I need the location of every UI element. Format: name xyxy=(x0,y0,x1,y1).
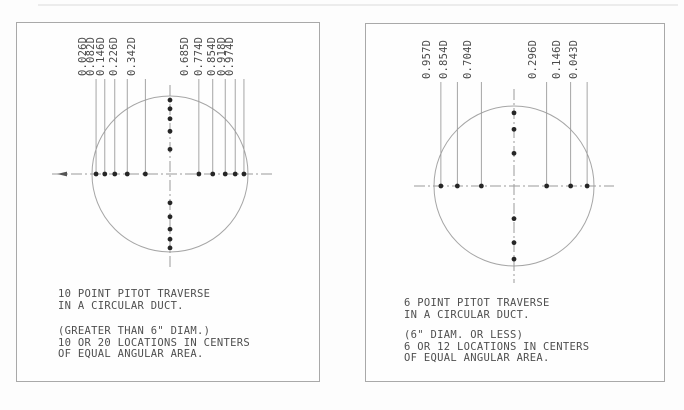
note-line: (6" DIAM. OR LESS) xyxy=(404,330,523,342)
traverse-point-vertical xyxy=(168,237,173,242)
traverse-point-horizontal xyxy=(544,184,549,189)
traverse-point-vertical xyxy=(168,227,173,232)
note-line: OF EQUAL ANGULAR AREA. xyxy=(58,349,204,361)
traverse-point-vertical xyxy=(512,127,517,132)
dimension-label: 0.974D xyxy=(224,37,237,76)
panel-6-point-traverse: 0.957D0.854D0.704D0.296D0.146D0.043D6 PO… xyxy=(365,23,665,382)
traverse-point-horizontal xyxy=(196,172,201,177)
traverse-point-horizontal xyxy=(210,172,215,177)
traverse-point-horizontal xyxy=(455,184,460,189)
dimension-label: 0.854D xyxy=(438,40,451,79)
caption-line: 6 POINT PITOT TRAVERSE xyxy=(404,298,550,310)
dimension-label: 0.226D xyxy=(108,37,121,76)
traverse-point-horizontal xyxy=(242,172,247,177)
caption-line: IN A CIRCULAR DUCT. xyxy=(58,301,184,313)
dimension-label: 0.704D xyxy=(462,40,475,79)
traverse-point-horizontal xyxy=(568,184,573,189)
traverse-point-vertical xyxy=(512,216,517,221)
traverse-point-horizontal xyxy=(125,172,130,177)
note-line: OF EQUAL ANGULAR AREA. xyxy=(404,353,550,365)
centerline-arrowhead xyxy=(57,172,67,177)
caption-line: 10 POINT PITOT TRAVERSE xyxy=(58,289,210,301)
dimension-label: 0.342D xyxy=(126,37,139,76)
caption-line: IN A CIRCULAR DUCT. xyxy=(404,310,530,322)
dimension-label: 0.957D xyxy=(421,40,434,79)
traverse-point-vertical xyxy=(512,257,517,262)
traverse-point-horizontal xyxy=(94,172,99,177)
panel-10-point-traverse: 0.026D0.082D0.146D0.226D0.342D0.685D0.77… xyxy=(16,22,320,382)
dimension-label: 0.146D xyxy=(551,40,564,79)
traverse-point-vertical xyxy=(512,240,517,245)
traverse-point-vertical xyxy=(512,110,517,115)
traverse-point-vertical xyxy=(168,116,173,121)
traverse-point-vertical xyxy=(168,106,173,111)
dimension-label: 0.774D xyxy=(193,37,206,76)
traverse-point-horizontal xyxy=(479,184,484,189)
traverse-point-vertical xyxy=(168,246,173,251)
traverse-point-horizontal xyxy=(223,172,228,177)
traverse-point-vertical xyxy=(168,200,173,205)
traverse-point-horizontal xyxy=(143,172,148,177)
traverse-point-horizontal xyxy=(438,184,443,189)
traverse-point-vertical xyxy=(168,98,173,103)
traverse-point-horizontal xyxy=(233,172,238,177)
note-line: (GREATER THAN 6" DIAM.) xyxy=(58,326,210,338)
traverse-diagram xyxy=(366,24,664,381)
dimension-label: 0.296D xyxy=(527,40,540,79)
traverse-point-vertical xyxy=(168,129,173,134)
traverse-point-vertical xyxy=(168,147,173,152)
dimension-label: 0.685D xyxy=(179,37,192,76)
traverse-point-horizontal xyxy=(102,172,107,177)
dimension-label: 0.146D xyxy=(95,37,108,76)
traverse-point-vertical xyxy=(168,214,173,219)
traverse-point-horizontal xyxy=(585,184,590,189)
traverse-point-horizontal xyxy=(112,172,117,177)
dimension-label: 0.043D xyxy=(568,40,581,79)
scan-artifact xyxy=(38,4,678,6)
traverse-point-vertical xyxy=(512,151,517,156)
drawing-sheet: 0.026D0.082D0.146D0.226D0.342D0.685D0.77… xyxy=(0,0,684,410)
